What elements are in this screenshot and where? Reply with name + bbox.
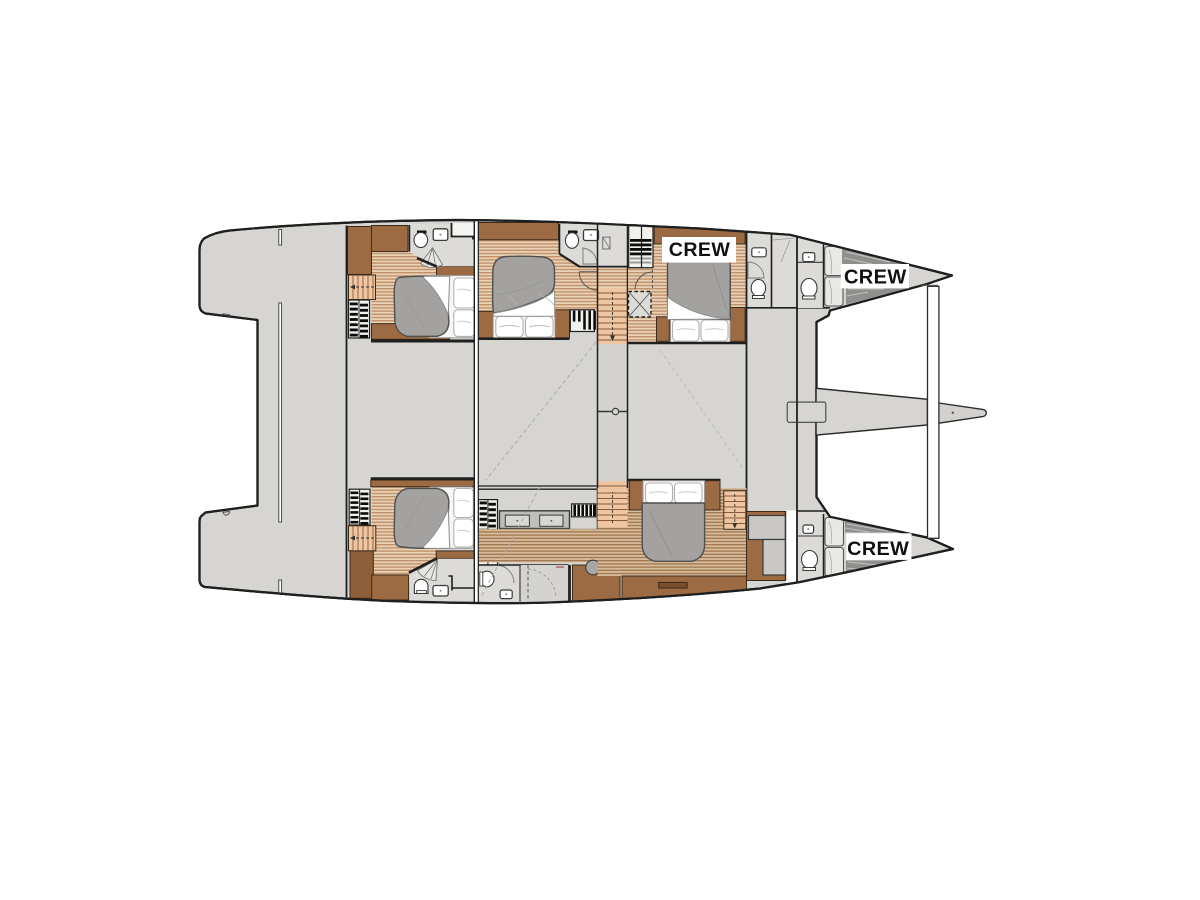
svg-text:CREW: CREW <box>847 538 909 560</box>
svg-text:CREW: CREW <box>844 266 907 288</box>
svg-text:CREW: CREW <box>669 239 731 261</box>
